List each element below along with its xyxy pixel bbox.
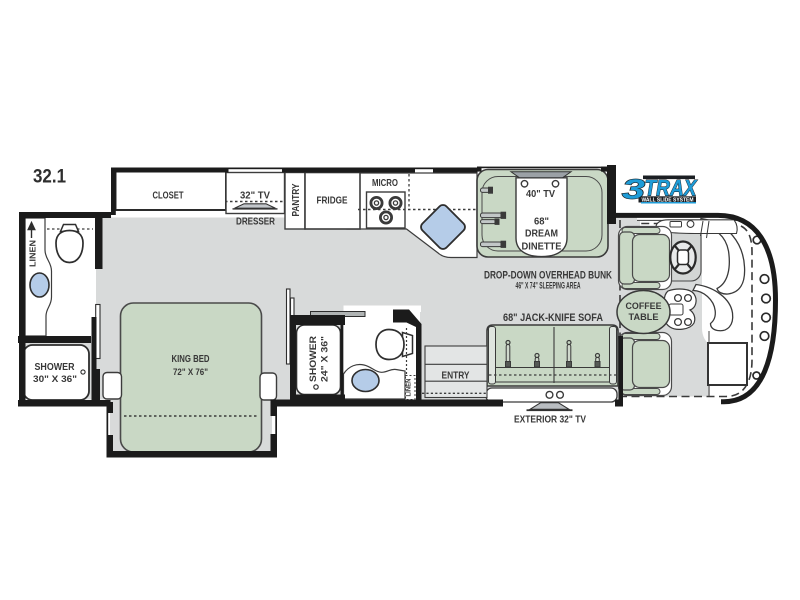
- svg-text:EXTERIOR 32" TV: EXTERIOR 32" TV: [514, 414, 586, 426]
- svg-text:30" X 36": 30" X 36": [33, 374, 77, 385]
- svg-text:46" X 74" SLEEPING AREA: 46" X 74" SLEEPING AREA: [516, 281, 581, 292]
- svg-text:SHOWER: SHOWER: [308, 336, 319, 382]
- svg-text:KING BED: KING BED: [172, 353, 210, 365]
- svg-text:TABLE: TABLE: [629, 312, 659, 323]
- svg-text:WALL SLIDE SYSTEM: WALL SLIDE SYSTEM: [642, 198, 694, 204]
- svg-text:COFFEE: COFFEE: [626, 301, 662, 312]
- svg-text:72" X 76": 72" X 76": [173, 367, 208, 378]
- svg-text:CLOSET: CLOSET: [153, 190, 184, 202]
- svg-text:DRESSER: DRESSER: [236, 216, 275, 228]
- svg-text:SHOWER: SHOWER: [35, 361, 75, 373]
- svg-text:68": 68": [534, 216, 549, 228]
- svg-text:68" JACK-KNIFE SOFA: 68" JACK-KNIFE SOFA: [503, 312, 603, 324]
- svg-text:24" X 36": 24" X 36": [320, 336, 331, 382]
- svg-text:FRIDGE: FRIDGE: [317, 195, 348, 207]
- svg-text:LINEN: LINEN: [28, 240, 38, 267]
- svg-text:MICRO: MICRO: [372, 177, 398, 189]
- svg-text:DINETTE: DINETTE: [522, 241, 562, 253]
- svg-text:PANTRY: PANTRY: [290, 184, 302, 217]
- svg-text:32" TV: 32" TV: [240, 190, 270, 202]
- svg-text:32.1: 32.1: [33, 167, 66, 188]
- svg-text:LINEN: LINEN: [406, 378, 413, 396]
- svg-text:DREAM: DREAM: [525, 228, 558, 240]
- svg-text:40" TV: 40" TV: [526, 188, 555, 200]
- svg-text:ENTRY: ENTRY: [442, 370, 470, 382]
